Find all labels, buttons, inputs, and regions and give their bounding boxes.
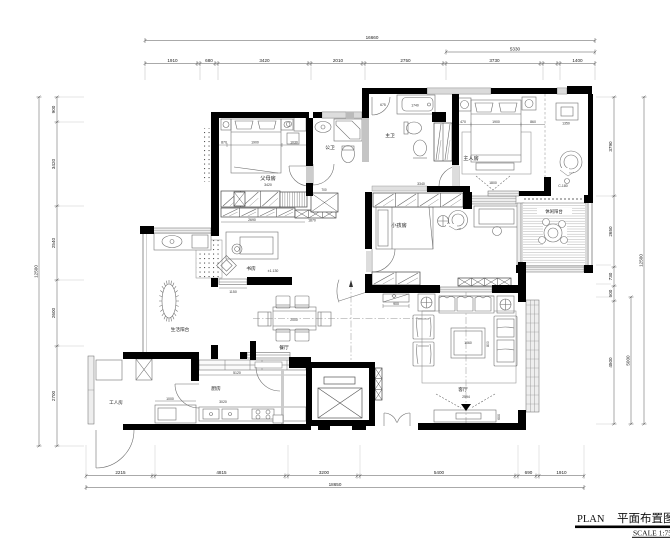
svg-text:2690: 2690 bbox=[248, 218, 256, 222]
svg-text:工人房: 工人房 bbox=[109, 399, 123, 406]
svg-text:父母房: 父母房 bbox=[260, 174, 276, 182]
svg-text:1800: 1800 bbox=[489, 181, 497, 185]
svg-text:2650: 2650 bbox=[608, 226, 613, 237]
svg-text:2700: 2700 bbox=[51, 390, 56, 401]
svg-text:平面布置图: 平面布置图 bbox=[617, 512, 670, 525]
svg-text:C-180: C-180 bbox=[558, 184, 568, 188]
svg-text:1740: 1740 bbox=[411, 104, 419, 108]
svg-text:1030: 1030 bbox=[290, 141, 298, 145]
svg-text:690: 690 bbox=[525, 470, 533, 475]
svg-text:小孩房: 小孩房 bbox=[391, 221, 407, 229]
svg-text:主卫: 主卫 bbox=[385, 132, 395, 139]
svg-text:12500: 12500 bbox=[34, 265, 39, 278]
svg-text:3020: 3020 bbox=[219, 400, 227, 404]
svg-text:800: 800 bbox=[486, 341, 490, 347]
svg-text:500: 500 bbox=[608, 289, 613, 297]
svg-text:600: 600 bbox=[497, 414, 501, 420]
svg-text:2010: 2010 bbox=[333, 58, 344, 63]
svg-text:±1.130: ±1.130 bbox=[268, 269, 279, 273]
svg-text:860: 860 bbox=[530, 120, 536, 124]
svg-text:2600: 2600 bbox=[51, 307, 56, 318]
svg-text:3200: 3200 bbox=[319, 470, 330, 475]
svg-text:1060: 1060 bbox=[464, 341, 472, 345]
svg-text:1350: 1350 bbox=[562, 122, 570, 126]
svg-text:675: 675 bbox=[380, 103, 386, 107]
svg-text:3420: 3420 bbox=[264, 183, 272, 187]
svg-text:870: 870 bbox=[221, 141, 227, 145]
svg-text:5120: 5120 bbox=[233, 371, 241, 375]
svg-text:客厅: 客厅 bbox=[458, 386, 468, 393]
svg-text:厨房: 厨房 bbox=[211, 385, 221, 392]
svg-text:4815: 4815 bbox=[216, 470, 227, 475]
svg-text:1400: 1400 bbox=[572, 58, 583, 63]
svg-text:12500: 12500 bbox=[639, 254, 644, 267]
svg-text:主人房: 主人房 bbox=[463, 154, 479, 162]
svg-text:2594: 2594 bbox=[462, 395, 470, 399]
svg-text:5000: 5000 bbox=[626, 355, 631, 366]
svg-text:1910: 1910 bbox=[167, 58, 178, 63]
svg-text:470: 470 bbox=[460, 120, 466, 124]
svg-text:2215: 2215 bbox=[115, 470, 126, 475]
svg-text:5330: 5330 bbox=[510, 47, 521, 52]
svg-text:餐厅: 餐厅 bbox=[279, 344, 289, 351]
svg-text:2540: 2540 bbox=[51, 237, 56, 248]
svg-text:3790: 3790 bbox=[608, 141, 613, 152]
svg-text:730: 730 bbox=[608, 272, 613, 280]
svg-text:书房: 书房 bbox=[246, 265, 256, 272]
svg-text:3420: 3420 bbox=[51, 158, 56, 169]
svg-text:SCALE 1:75: SCALE 1:75 bbox=[633, 529, 670, 538]
svg-text:900: 900 bbox=[51, 105, 56, 113]
svg-text:1910: 1910 bbox=[556, 470, 567, 475]
svg-text:1870: 1870 bbox=[308, 219, 316, 223]
svg-text:PLAN: PLAN bbox=[577, 514, 605, 525]
svg-text:3340: 3340 bbox=[417, 182, 425, 186]
svg-text:1150: 1150 bbox=[229, 290, 237, 294]
svg-text:休闲阳台: 休闲阳台 bbox=[545, 208, 563, 215]
svg-text:2750: 2750 bbox=[400, 58, 411, 63]
svg-text:4500: 4500 bbox=[608, 357, 613, 368]
svg-text:1900: 1900 bbox=[251, 141, 259, 145]
svg-text:1900: 1900 bbox=[492, 120, 500, 124]
svg-text:生活阳台: 生活阳台 bbox=[171, 326, 190, 333]
svg-text:5400: 5400 bbox=[434, 470, 445, 475]
svg-text:1000: 1000 bbox=[166, 397, 174, 401]
svg-text:900: 900 bbox=[393, 302, 399, 306]
svg-text:680: 680 bbox=[205, 58, 213, 63]
svg-text:16660: 16660 bbox=[366, 35, 379, 40]
svg-text:700: 700 bbox=[321, 188, 327, 192]
svg-text:3420: 3420 bbox=[259, 58, 270, 63]
svg-text:3730: 3730 bbox=[489, 58, 500, 63]
svg-text:公卫: 公卫 bbox=[325, 145, 335, 151]
svg-text:18650: 18650 bbox=[329, 482, 342, 487]
